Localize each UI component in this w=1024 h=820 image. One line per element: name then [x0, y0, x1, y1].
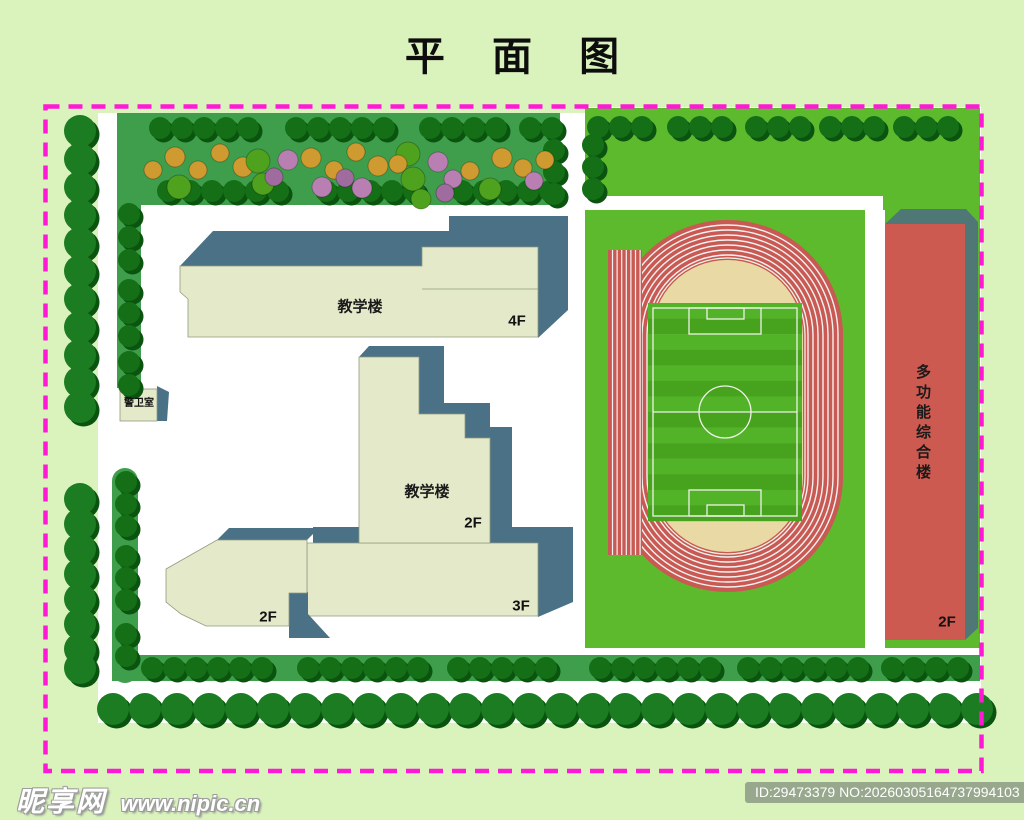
label-floor-4f: 4F — [508, 313, 526, 330]
site-plan-canvas — [0, 0, 1024, 819]
guard-room-shadow — [157, 386, 169, 421]
straight-lane-lines — [613, 250, 641, 555]
watermark-url: www.nipic.cn — [120, 791, 260, 816]
page-title: 平 面 图 — [0, 24, 1024, 82]
watermark: 昵享网 www.nipic.cn — [16, 780, 260, 820]
label-floor-2f-multi: 2F — [938, 614, 956, 631]
label-teaching-mid: 教学楼 — [404, 481, 449, 502]
building-3f-face — [307, 543, 538, 616]
label-multi-purpose: 多功能综合楼 — [912, 364, 933, 484]
road-horizontal — [560, 196, 883, 210]
soccer-field — [648, 303, 802, 521]
label-teaching-top: 教学楼 — [337, 296, 382, 317]
bottom-margin — [47, 723, 981, 771]
label-floor-2f-left: 2F — [259, 609, 277, 626]
id-badge: ID:29473379 NO:20260305164737994103 — [745, 782, 1024, 803]
label-floor-3f: 3F — [512, 598, 530, 615]
building-2f-left-shadow — [217, 528, 319, 540]
running-track — [608, 220, 843, 592]
watermark-brand: 昵享网 — [16, 786, 106, 817]
label-floor-2f-mid: 2F — [464, 515, 482, 532]
road-vertical — [865, 210, 885, 648]
label-guard-room: 警卫室 — [121, 398, 157, 409]
